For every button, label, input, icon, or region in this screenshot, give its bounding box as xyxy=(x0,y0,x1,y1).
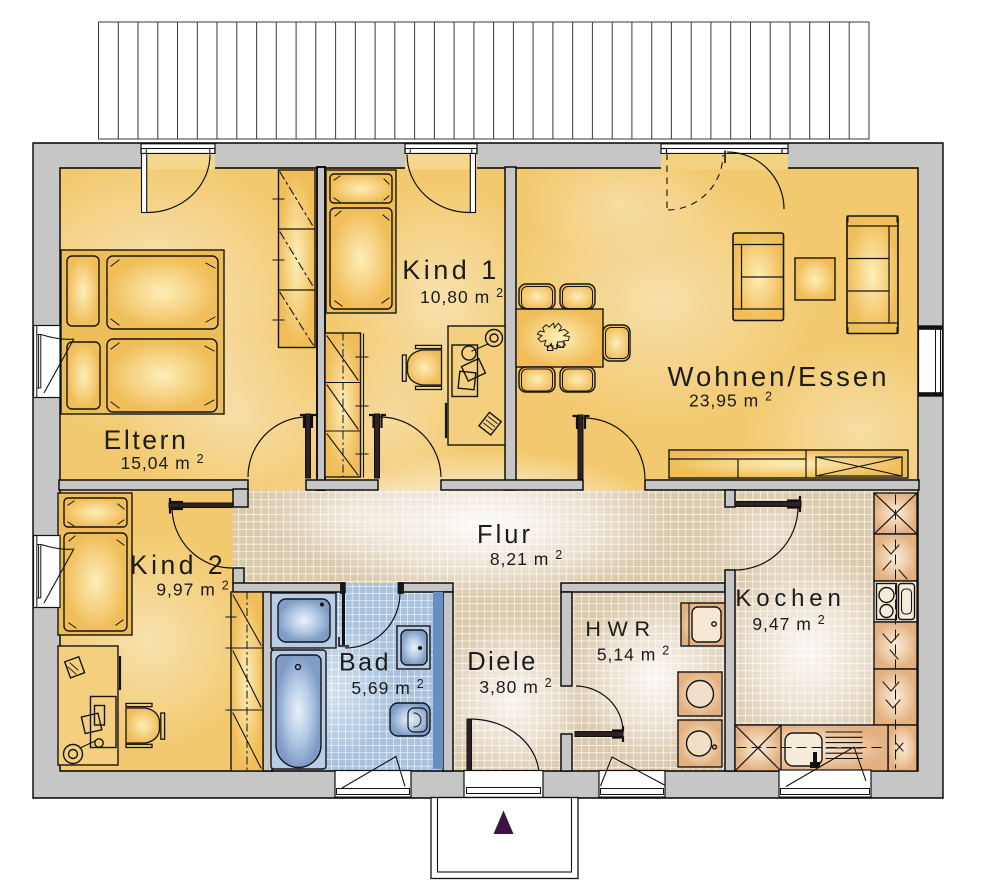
svg-text:23,95 m 2: 23,95 m 2 xyxy=(689,390,773,411)
svg-text:5,14 m 2: 5,14 m 2 xyxy=(597,644,670,665)
svg-text:Eltern: Eltern xyxy=(104,425,189,455)
svg-text:Diele: Diele xyxy=(467,648,538,676)
svg-text:5,69 m 2: 5,69 m 2 xyxy=(351,677,424,698)
svg-text:9,47 m 2: 9,47 m 2 xyxy=(752,613,825,634)
svg-text:Wohnen/Essen: Wohnen/Essen xyxy=(667,361,889,392)
svg-text:8,21 m 2: 8,21 m 2 xyxy=(490,548,563,569)
svg-text:10,80 m 2: 10,80 m 2 xyxy=(420,286,504,307)
svg-text:3,80 m 2: 3,80 m 2 xyxy=(479,676,552,697)
svg-text:Kochen: Kochen xyxy=(735,585,845,612)
svg-text:Kind 1: Kind 1 xyxy=(402,255,500,285)
svg-text:9,97 m 2: 9,97 m 2 xyxy=(156,579,229,600)
svg-text:Kind 2: Kind 2 xyxy=(130,550,226,580)
svg-text:Bad: Bad xyxy=(339,649,391,677)
svg-text:Flur: Flur xyxy=(477,521,533,549)
svg-text:15,04 m 2: 15,04 m 2 xyxy=(120,452,204,473)
svg-text:HWR: HWR xyxy=(585,617,656,641)
